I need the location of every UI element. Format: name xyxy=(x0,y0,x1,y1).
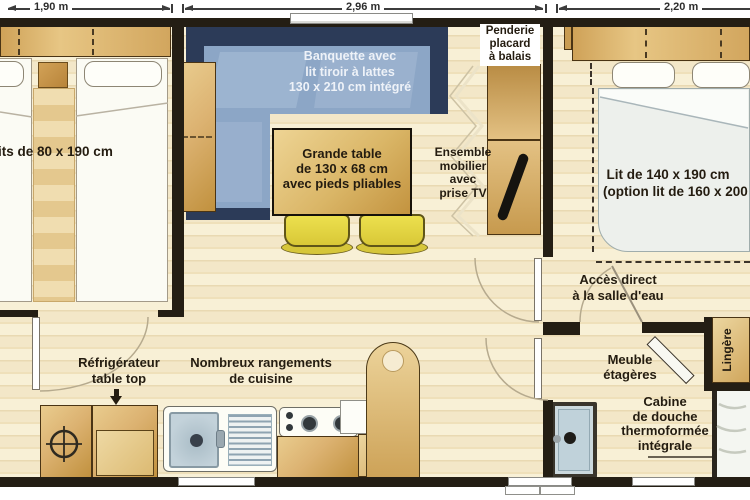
linen-cupboard-label: Lingère xyxy=(721,315,737,385)
door-leaf xyxy=(32,317,40,390)
stove-knob-icon xyxy=(286,424,293,431)
entrance-step-tick xyxy=(539,487,541,494)
pillow xyxy=(0,61,24,87)
wardrobe-right-bedroom xyxy=(572,26,750,61)
partition-wall xyxy=(642,322,712,333)
pillow xyxy=(612,62,675,88)
wardrobe-divider xyxy=(92,29,94,55)
dimension-arrow-icon xyxy=(185,5,193,11)
bathroom-access-label: Accès direct à la salle d'eau xyxy=(548,272,688,303)
worktop-end-panel xyxy=(340,400,368,434)
peninsula-cutout xyxy=(382,350,404,372)
dimension-label-right: 2,20 m xyxy=(660,1,702,14)
faucet-icon xyxy=(564,432,576,444)
chair xyxy=(284,214,350,247)
dimension-arrow-icon xyxy=(8,5,16,11)
stove-knob-icon xyxy=(286,412,293,419)
down-arrow-icon xyxy=(110,396,122,405)
dimension-arrow-icon xyxy=(535,5,543,11)
broom-cupboard xyxy=(487,64,541,140)
double-bed-option-label: (option lit de 160 x 200 c xyxy=(603,184,750,200)
dimension-tick xyxy=(182,4,184,13)
pillow xyxy=(692,62,750,88)
window xyxy=(178,477,255,486)
faucet-icon xyxy=(553,435,561,443)
shelf-unit-label: Meuble étagères xyxy=(580,352,680,382)
dimension-line-right xyxy=(559,8,750,10)
partition-wall xyxy=(0,310,38,317)
door-leaf xyxy=(534,258,542,321)
table-label: Grande table de 130 x 68 cm avec pieds p… xyxy=(272,146,412,191)
kitchen-unit xyxy=(277,436,360,478)
window xyxy=(632,477,695,486)
wardrobe-divider xyxy=(645,29,647,58)
dimension-tick xyxy=(171,4,173,13)
drain-icon xyxy=(190,434,203,447)
fridge-door xyxy=(96,430,154,476)
beds-size-label: its de 80 x 190 cm xyxy=(0,144,113,160)
side-cabinet-divider xyxy=(182,136,212,138)
floor-plan: 1,90 m 2,96 m 2,20 m its de 80 x 190 cm … xyxy=(0,0,750,500)
double-bed-label: Lit de 140 x 190 cm xyxy=(586,166,750,183)
wardrobe-step xyxy=(564,26,572,50)
fridge-label: Réfrigérateur table top xyxy=(49,355,189,387)
penderie-label: Penderie placard à balais xyxy=(480,25,540,64)
dimension-label-left: 1,90 m xyxy=(30,1,72,14)
partition-wall xyxy=(543,322,580,335)
nightstand xyxy=(38,62,68,88)
wardrobe-divider xyxy=(720,29,722,58)
partition-wall xyxy=(158,310,184,317)
dimension-arrow-icon xyxy=(162,5,170,11)
shower-label: Cabine de douche thermoformée intégrale xyxy=(600,395,730,453)
partition-wall xyxy=(172,18,184,317)
wardrobe-divider xyxy=(18,29,20,55)
partition-wall xyxy=(543,400,553,478)
bed-access-dash xyxy=(596,261,750,263)
ensemble-mobilier-label: Ensemble mobilier avec prise TV xyxy=(427,146,499,200)
banquette-label: Banquette avec lit tiroir à lattes 130 x… xyxy=(260,49,440,96)
dimension-tick xyxy=(545,4,547,13)
bedside-unit xyxy=(33,88,75,302)
single-bed-left xyxy=(0,58,32,302)
faucet-icon xyxy=(216,430,225,448)
dimension-tick xyxy=(556,4,558,13)
partition-wall xyxy=(543,18,553,257)
banquette-cushion xyxy=(208,122,262,202)
pillow xyxy=(84,61,162,87)
window xyxy=(290,13,413,24)
single-bed-right xyxy=(76,58,168,302)
chair xyxy=(359,214,425,247)
kitchen-storage-label: Nombreux rangements de cuisine xyxy=(180,355,342,387)
dimension-arrow-icon xyxy=(559,5,567,11)
partition-wall xyxy=(704,317,712,390)
layout-dash xyxy=(590,63,592,85)
entrance-door-threshold xyxy=(508,477,572,486)
kitchen-unit xyxy=(40,405,92,478)
banquette-backrest xyxy=(186,26,448,46)
drainer-rack xyxy=(228,414,272,466)
burner-icon xyxy=(301,415,318,432)
door-leaf xyxy=(534,338,542,399)
wardrobe-left-bedroom xyxy=(0,26,171,57)
